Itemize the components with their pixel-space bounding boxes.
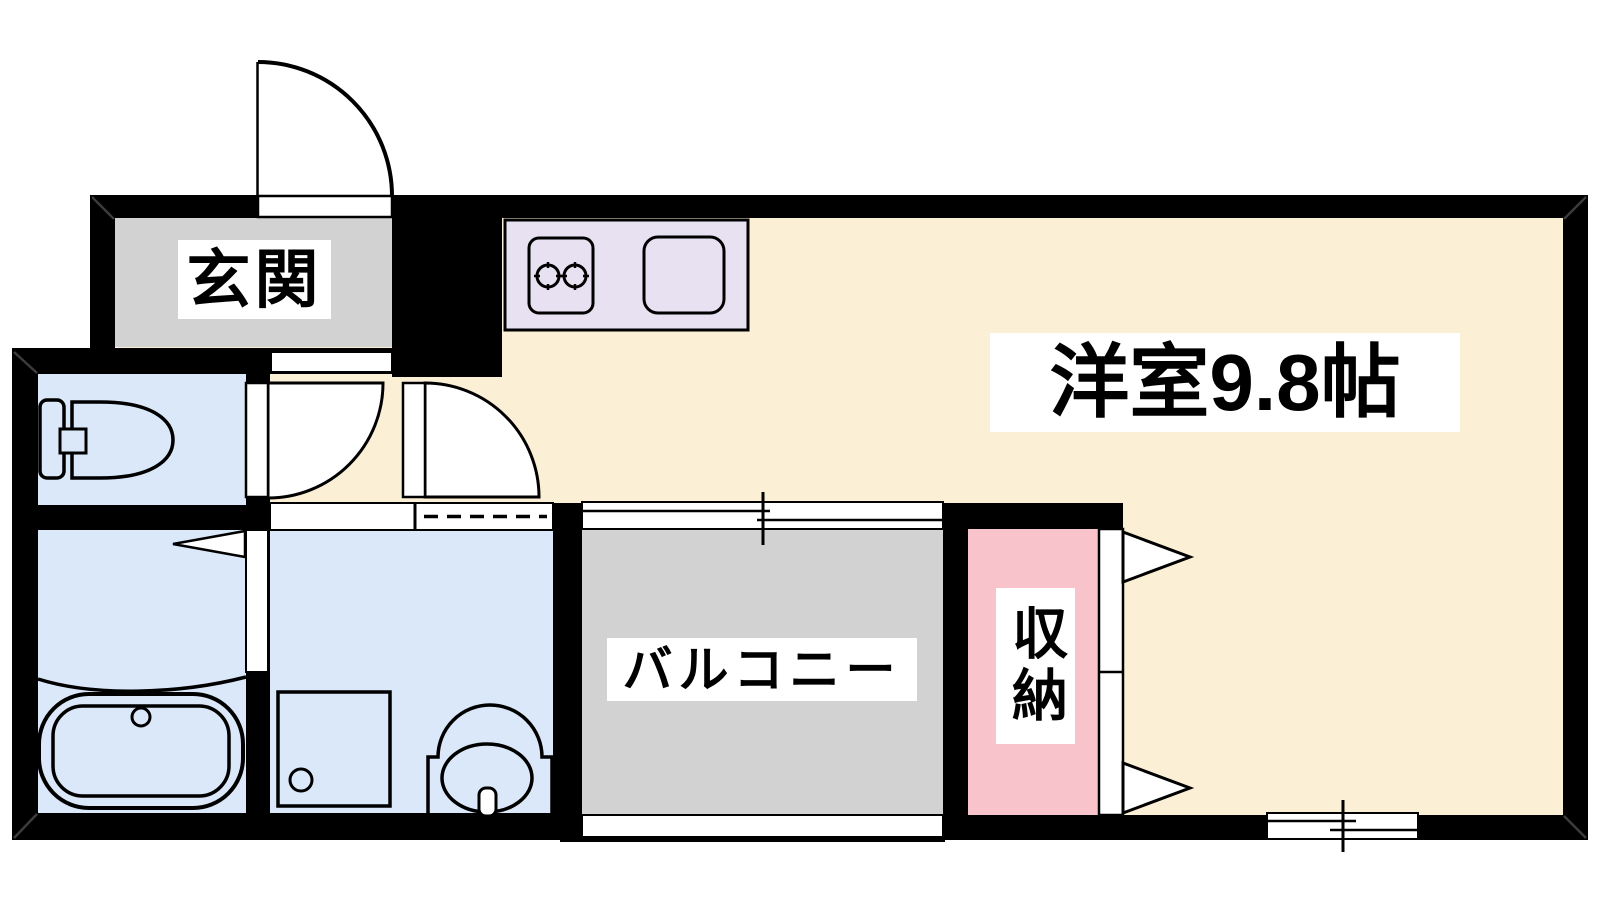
entrance-door [258,62,393,217]
wall-washroom-balcony [553,503,582,840]
kitchen-counter [505,220,748,330]
wall-storage-top [943,503,1123,529]
bathroom-floor [38,530,246,813]
wall-bottom-right [943,815,1588,840]
storage-label: 収納 [996,588,1075,744]
floor-plan-drawing [0,0,1600,900]
floor-plan: 玄関 洋室9.8帖 バルコニー 収納 [0,0,1600,900]
wall-toilet-bath [12,505,270,530]
toilet-door-leaf [246,383,268,497]
wall-entrance-kitchen-block [392,195,502,377]
entrance-door-leaf [258,196,392,217]
balcony-label: バルコニー [607,638,917,701]
entrance-hall-opening [271,352,392,372]
wall-bottom-left [12,813,580,840]
main-room-door-leaf [403,383,425,497]
wall-right [1563,195,1588,840]
washroom-sliding-door [270,503,553,530]
main-room-label: 洋室9.8帖 [990,333,1460,432]
wall-left-lower [12,348,38,840]
entrance-label: 玄関 [178,240,331,319]
balcony-railing [560,815,945,842]
bathroom-door-opening [246,530,268,672]
vanity-faucet [479,788,496,816]
washroom-floor [270,530,553,815]
toilet-seat-hinge [60,429,86,453]
wall-left-upper [90,195,115,350]
balcony-railing-band [582,815,943,837]
balcony-railing-edge [560,837,945,842]
washroom-door-track [270,503,553,530]
wall-balcony-storage [943,503,968,840]
